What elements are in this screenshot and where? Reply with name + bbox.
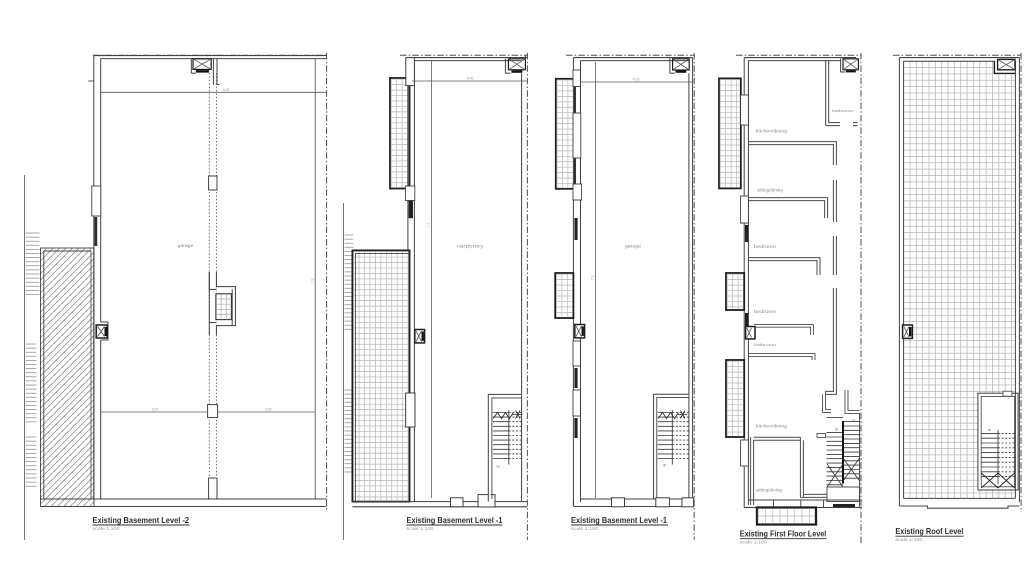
svg-text:Existing First Floor Level: Existing First Floor Level	[740, 529, 827, 539]
svg-text:scale 1:100: scale 1:100	[407, 526, 435, 531]
svg-text:up: up	[852, 418, 856, 422]
svg-text:7.9: 7.9	[591, 276, 595, 281]
svg-text:carpentry: carpentry	[457, 243, 485, 248]
svg-text:up: up	[663, 463, 667, 467]
svg-text:kitchen/dining: kitchen/dining	[756, 128, 788, 133]
svg-text:sitting/dining: sitting/dining	[756, 488, 783, 493]
svg-text:7.9: 7.9	[310, 279, 314, 284]
svg-text:dn: dn	[988, 428, 992, 432]
svg-text:7.9: 7.9	[427, 223, 431, 228]
svg-text:scale 1:100: scale 1:100	[93, 526, 121, 531]
svg-text:bathroom: bathroom	[754, 342, 777, 347]
svg-text:up: up	[496, 465, 500, 469]
svg-text:4.05: 4.05	[633, 78, 640, 82]
svg-text:dn: dn	[835, 427, 839, 431]
svg-text:3.05: 3.05	[265, 408, 272, 412]
svg-text:3.05: 3.05	[152, 408, 159, 412]
svg-text:scale 1:100: scale 1:100	[895, 537, 923, 542]
svg-text:Existing Basement Level -1: Existing Basement Level -1	[571, 515, 667, 525]
svg-text:sitting/dining: sitting/dining	[757, 188, 784, 193]
svg-text:bedroom: bedroom	[754, 244, 777, 249]
svg-text:kitchen/dining: kitchen/dining	[756, 424, 788, 429]
svg-text:scale 1:100: scale 1:100	[571, 526, 599, 531]
svg-text:bedroom: bedroom	[754, 309, 777, 314]
svg-text:Existing Basement Level -1: Existing Basement Level -1	[407, 515, 503, 525]
svg-text:garage: garage	[625, 243, 642, 248]
svg-text:5.05: 5.05	[223, 88, 230, 92]
svg-text:Existing Basement Level -2: Existing Basement Level -2	[93, 515, 190, 525]
svg-text:garage: garage	[178, 243, 195, 248]
svg-text:Existing Roof Level: Existing Roof Level	[895, 526, 963, 536]
svg-text:scale 1:100: scale 1:100	[740, 540, 768, 545]
svg-text:bathroom: bathroom	[832, 108, 854, 113]
svg-text:4.05: 4.05	[467, 77, 474, 81]
